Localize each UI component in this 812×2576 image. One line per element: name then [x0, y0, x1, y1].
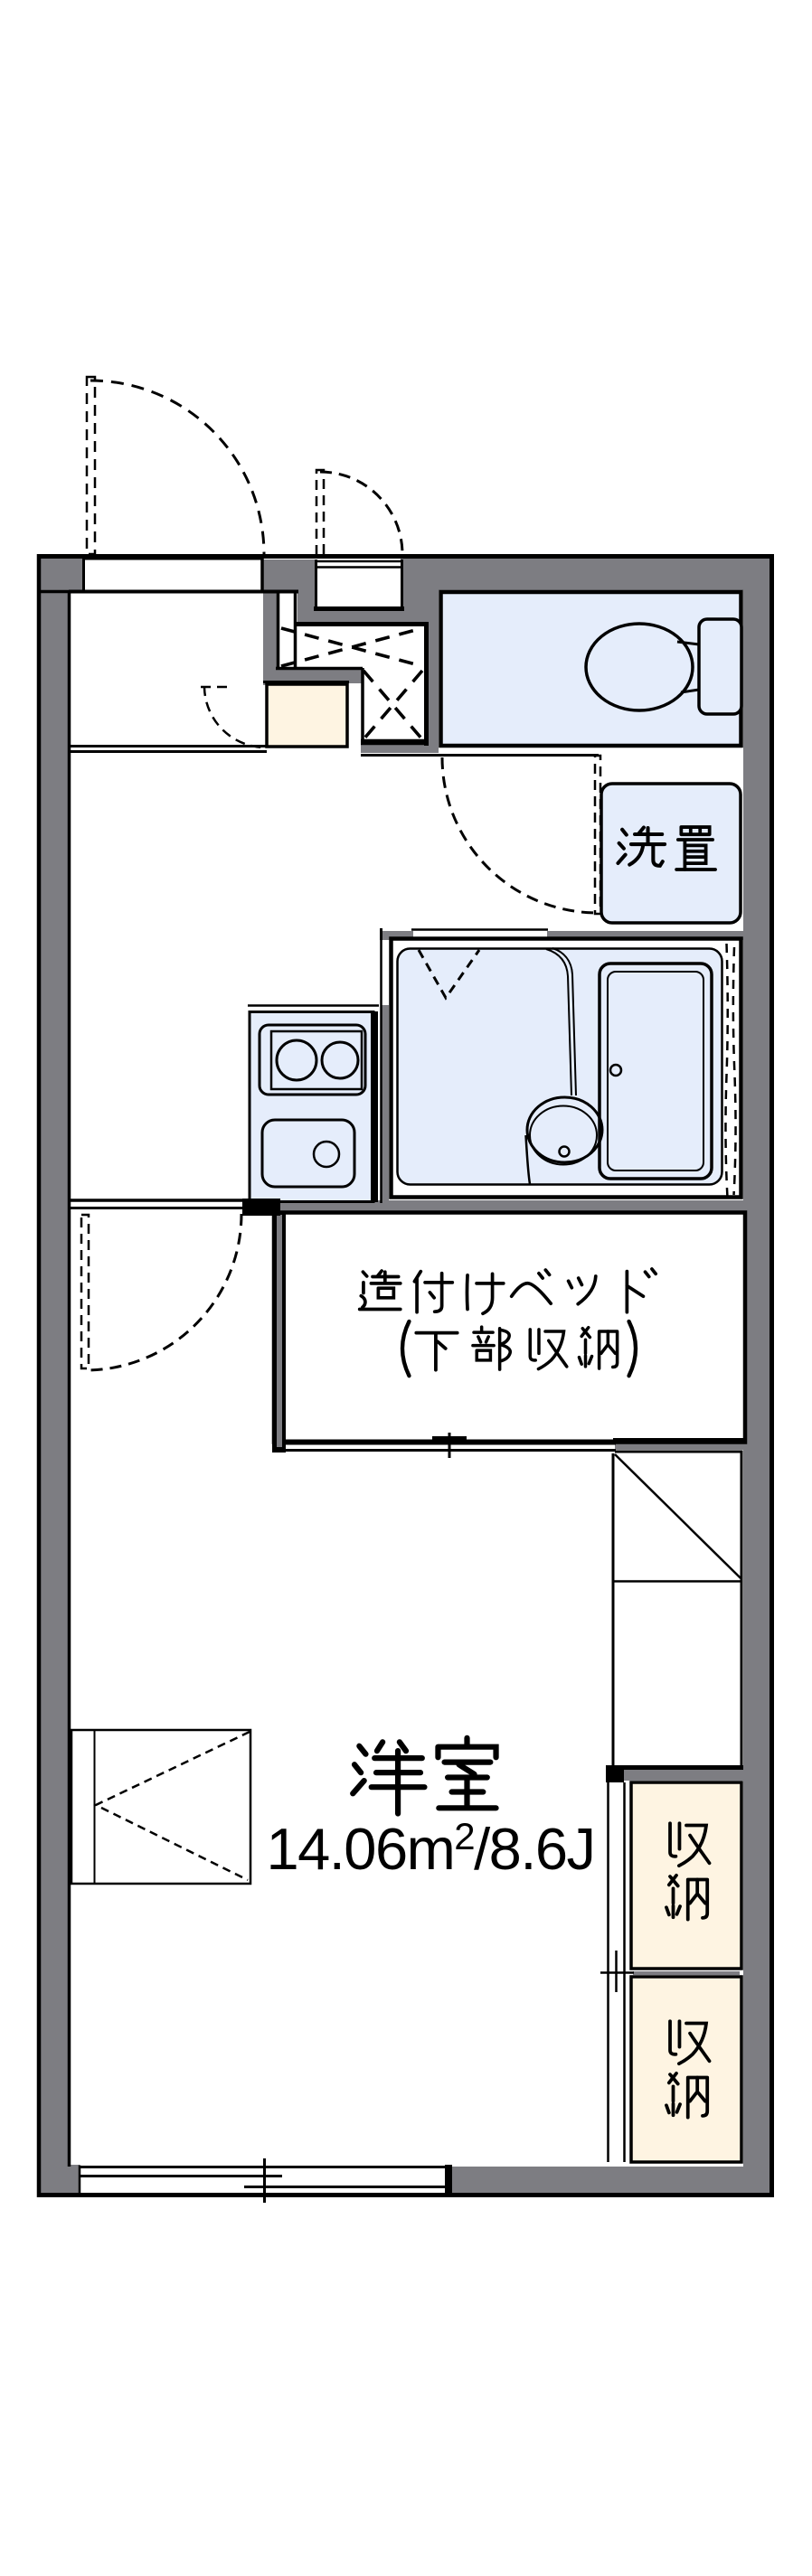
svg-text:14.06m2/8.6J: 14.06m2/8.6J [266, 1815, 594, 1882]
